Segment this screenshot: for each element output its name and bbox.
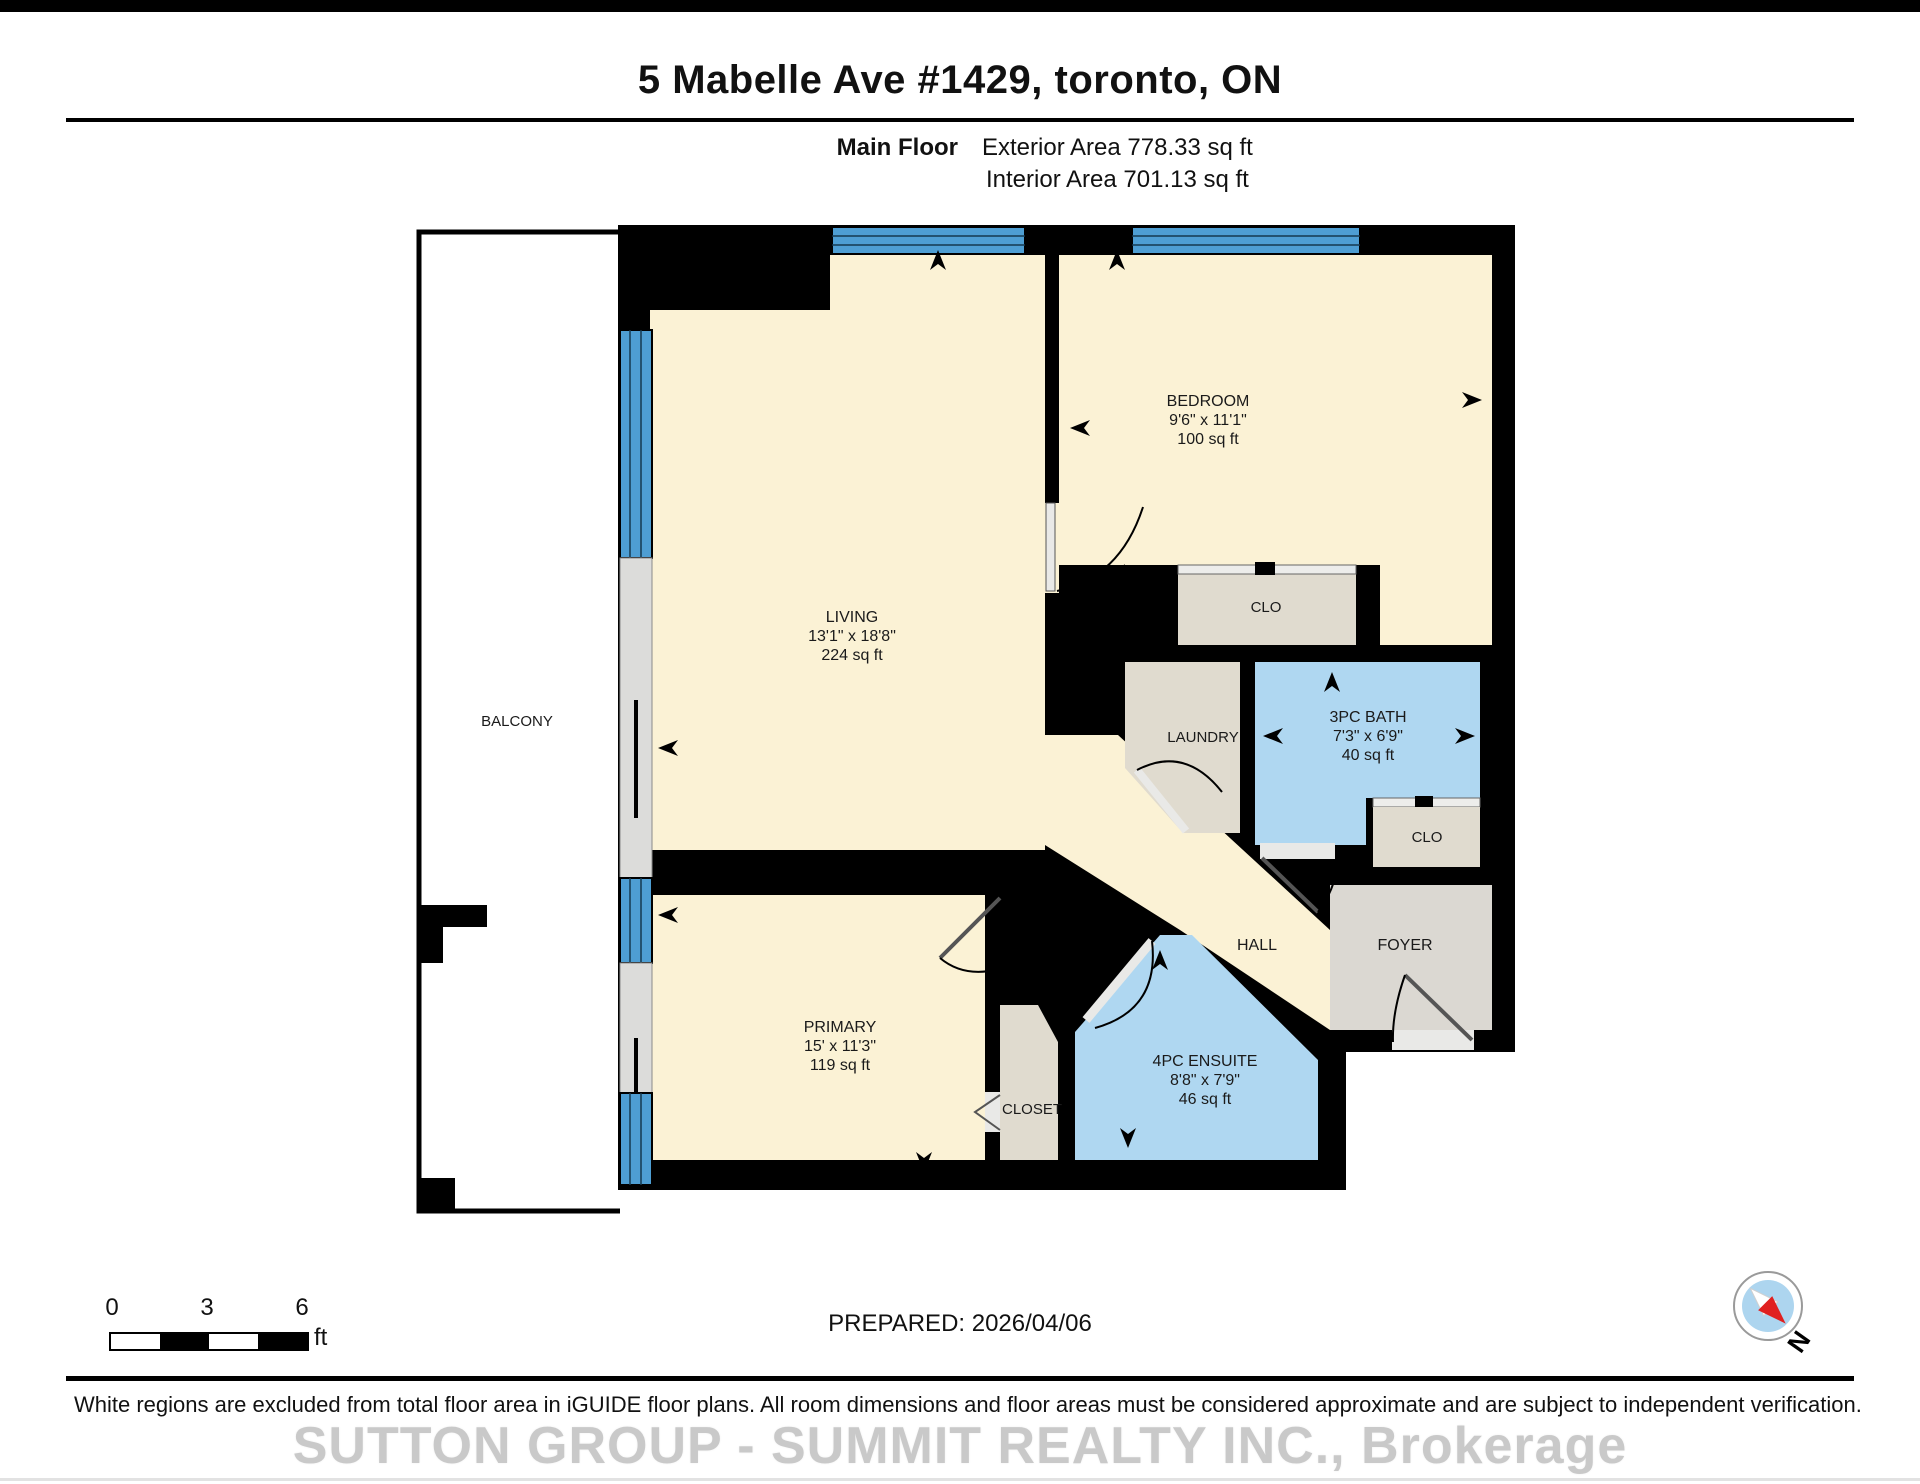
- balcony-door: [620, 558, 652, 878]
- room-name: HALL: [1237, 936, 1277, 955]
- room-label-foyer-closet: CLO: [1412, 828, 1443, 847]
- room-label-living: LIVING 13'1" x 18'8" 224 sq ft: [808, 608, 896, 665]
- balcony-door: [620, 963, 652, 1093]
- room-label-bedroom-closet: CLO: [1251, 598, 1282, 617]
- wall-block: [1356, 565, 1380, 645]
- wall-block: [1045, 565, 1178, 662]
- room-dims: 7'3" x 6'9": [1329, 727, 1406, 746]
- foyer-floor: [1330, 885, 1492, 1030]
- window: [620, 330, 652, 558]
- wall-block: [1177, 645, 1492, 662]
- living-floor: [650, 255, 1045, 850]
- room-label-ensuite: 4PC ENSUITE 8'8" x 7'9" 46 sq ft: [1153, 1052, 1258, 1109]
- room-name: LIVING: [808, 608, 896, 627]
- disclaimer-text: White regions are excluded from total fl…: [74, 1392, 1862, 1418]
- floorplan-page: 5 Mabelle Ave #1429, toronto, ON Main Fl…: [0, 0, 1920, 1484]
- room-area: 100 sq ft: [1167, 430, 1250, 449]
- footer-divider: [66, 1376, 1854, 1381]
- balcony-wall-stub: [417, 1178, 455, 1211]
- window: [620, 1093, 652, 1185]
- room-label-bedroom: BEDROOM 9'6" x 11'1" 100 sq ft: [1167, 392, 1250, 449]
- room-area: 119 sq ft: [804, 1056, 877, 1075]
- room-name: LAUNDRY: [1167, 728, 1238, 747]
- room-area: 40 sq ft: [1329, 746, 1406, 765]
- room-label-closet: CLOSET: [1002, 1100, 1062, 1119]
- closet-floor: [1000, 1005, 1058, 1160]
- room-dims: 9'6" x 11'1": [1167, 411, 1250, 430]
- prepared-date: PREPARED: 2026/04/06: [0, 1310, 1920, 1338]
- balcony-wall-stub: [417, 905, 487, 927]
- room-label-primary: PRIMARY 15' x 11'3" 119 sq ft: [804, 1018, 877, 1075]
- room-area: 46 sq ft: [1153, 1090, 1258, 1109]
- room-name: PRIMARY: [804, 1018, 877, 1037]
- room-dims: 8'8" x 7'9": [1153, 1071, 1258, 1090]
- room-name: CLOSET: [1002, 1100, 1062, 1119]
- sliding-door-tick: [1255, 562, 1275, 575]
- brokerage-watermark: SUTTON GROUP - SUMMIT REALTY INC., Broke…: [0, 1416, 1920, 1476]
- room-name: FOYER: [1377, 936, 1432, 955]
- room-name: BALCONY: [481, 712, 553, 731]
- bottom-border: [0, 1478, 1920, 1481]
- room-name: CLO: [1412, 828, 1443, 847]
- balcony-wall-stub: [417, 927, 443, 963]
- window: [620, 878, 652, 963]
- room-area: 224 sq ft: [808, 646, 896, 665]
- room-dims: 13'1" x 18'8": [808, 627, 896, 646]
- floorplan-drawing: [0, 0, 1920, 1484]
- room-name: CLO: [1251, 598, 1282, 617]
- room-label-foyer: FOYER: [1377, 936, 1432, 955]
- room-name: 4PC ENSUITE: [1153, 1052, 1258, 1071]
- room-name: 3PC BATH: [1329, 708, 1406, 727]
- window: [832, 227, 1025, 254]
- window: [1132, 227, 1360, 254]
- room-label-laundry: LAUNDRY: [1167, 728, 1238, 747]
- room-label-bath: 3PC BATH 7'3" x 6'9" 40 sq ft: [1329, 708, 1406, 765]
- room-label-balcony: BALCONY: [481, 712, 553, 731]
- room-dims: 15' x 11'3": [804, 1037, 877, 1056]
- room-label-hall: HALL: [1237, 936, 1277, 955]
- room-name: BEDROOM: [1167, 392, 1250, 411]
